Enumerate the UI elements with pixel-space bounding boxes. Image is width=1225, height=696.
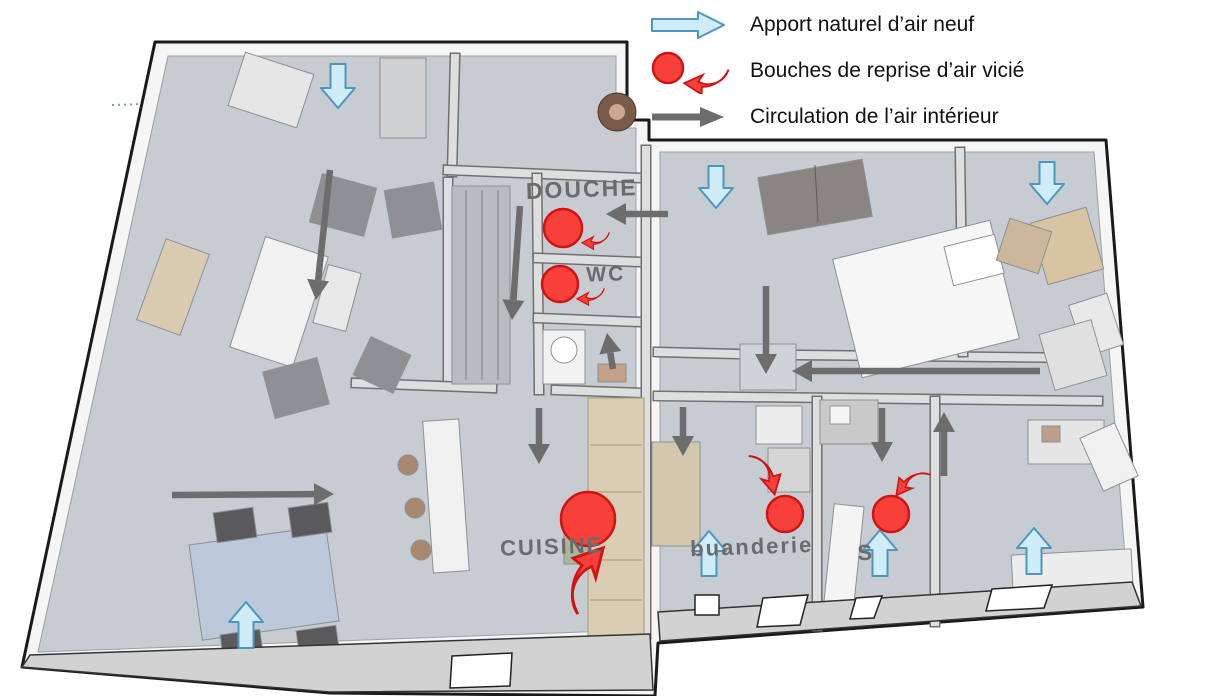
tall-cabinet: [380, 58, 426, 138]
window-opening: [450, 653, 512, 688]
legend-label: Apport naturel d’air neuf: [750, 13, 974, 37]
armchair: [384, 182, 442, 238]
appliance: [756, 406, 802, 444]
legend: Apport naturel d’air neuf Bouches de rep…: [650, 2, 1210, 140]
room-label: WC: [586, 262, 626, 286]
stool: [398, 455, 418, 475]
dining-chair: [288, 502, 332, 537]
stool: [405, 498, 425, 518]
legend-label: Bouches de reprise d’air vicié: [750, 59, 1024, 83]
laundry-cabinet: [652, 442, 700, 546]
gray-arrow-icon: [650, 105, 750, 129]
legend-row-fresh-air: Apport naturel d’air neuf: [650, 2, 1210, 48]
blue-arrow-icon: [650, 10, 750, 40]
room-label: CUISINE: [500, 532, 604, 561]
room-label: buanderie: [690, 532, 814, 561]
window-opening: [695, 595, 719, 615]
dining-table: [189, 526, 339, 640]
stool: [411, 540, 431, 560]
legend-row-extraction: Bouches de reprise d’air vicié: [650, 48, 1210, 94]
legend-label: Circulation de l’air intérieur: [750, 105, 999, 129]
room-label: DOUCHE: [525, 174, 638, 204]
dining-chair: [213, 507, 257, 542]
door-opening: [757, 595, 808, 627]
ventilation-diagram: DOUCHEWCCUISINEbuanderieS Apport naturel…: [0, 0, 1225, 696]
bookshelf: [452, 186, 510, 384]
axis-dotted-line: [112, 104, 144, 105]
room-label: S: [857, 540, 875, 566]
window-opening: [986, 585, 1052, 611]
legend-row-circulation: Circulation de l’air intérieur: [650, 94, 1210, 140]
red-vent-icon: [650, 48, 750, 94]
